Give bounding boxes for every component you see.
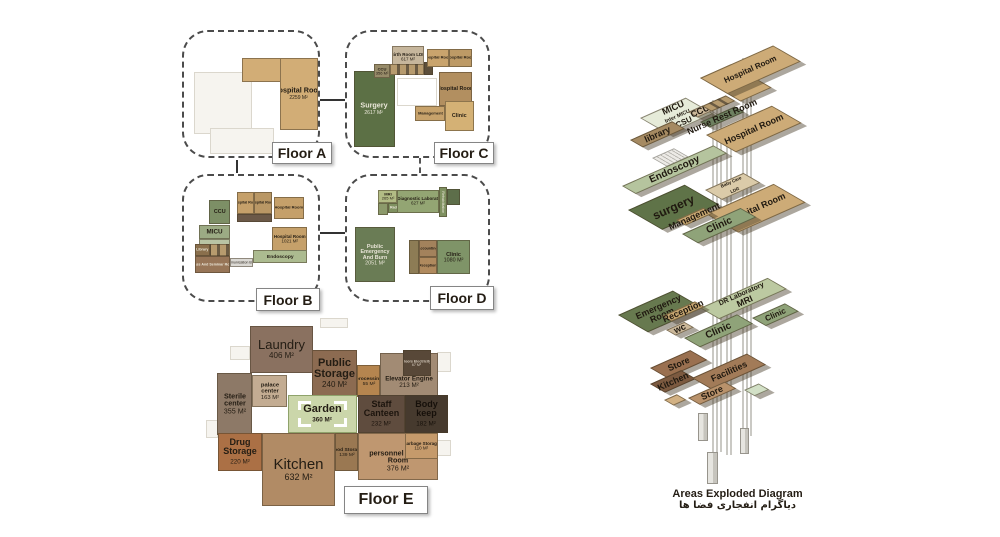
- garden-corner: [334, 401, 347, 410]
- room-label: MICU: [206, 229, 222, 236]
- room-emergency: Public Emergency And Burn 2051 M²: [355, 227, 395, 282]
- floor-a-box: Hospital Room 2259 M² Floor A: [182, 30, 320, 158]
- room-area: 617 M²: [401, 57, 415, 62]
- corridor: [237, 214, 272, 222]
- areas-diagram-canvas: Hospital Room 2259 M² Floor A Surgery 26…: [0, 0, 1000, 537]
- room-reception: Reception: [419, 257, 437, 274]
- floor-d-label-text: Floor D: [438, 290, 487, 306]
- room-label: Management: [418, 111, 443, 115]
- room-processing: processing 55 M²: [357, 365, 380, 397]
- room-area: 55 M²: [362, 381, 375, 386]
- room-label: Communication Bridge: [230, 261, 253, 265]
- room-hospital-room-2: Hospital Room: [449, 49, 472, 67]
- room-label: Library: [196, 248, 208, 252]
- floor-outline: [320, 318, 348, 328]
- plate-cell: [664, 394, 686, 405]
- room-label-group: Accounting: [419, 247, 437, 251]
- room-label-group: Clinic: [452, 113, 467, 119]
- room-label: Rehabilitation: [441, 191, 445, 213]
- room-area: 110 M²: [415, 446, 429, 451]
- room-palace-center: palace center 163 M²: [252, 375, 287, 407]
- room-drug-storage: Drug Storage 220 M²: [218, 433, 262, 471]
- room-hospital-room-2: Hospital Room: [254, 192, 272, 214]
- floor-b-label-text: Floor B: [264, 292, 313, 308]
- room-label: Hospital Room: [237, 201, 254, 205]
- connector-a-b: [236, 160, 238, 173]
- floor-e-label: Floor E: [344, 486, 428, 514]
- room-label-group: Hospital Room: [237, 201, 254, 205]
- room-label-group: Hospital Room: [449, 56, 472, 60]
- pillar: [740, 428, 749, 454]
- room-clinic: Clinic: [445, 101, 474, 131]
- room-area: 376 M²: [387, 465, 409, 473]
- room-label-group: Garbage Storage 110 M²: [405, 441, 438, 450]
- room-label: Public Storage: [313, 358, 356, 381]
- room-management: Management: [415, 106, 445, 121]
- room-surgery: Surgery 2617 M²: [354, 71, 395, 147]
- room-label: CCU: [214, 209, 226, 215]
- room-label-group: Floors Electricity 67 M²: [403, 359, 431, 367]
- service-cells: [210, 244, 230, 256]
- room-area: 67 M²: [412, 363, 421, 367]
- room-area: 355 M²: [223, 408, 245, 416]
- support-column: [746, 58, 748, 436]
- room-label-group: CCU: [214, 209, 226, 215]
- room-label: Drug Storage: [219, 438, 261, 457]
- room-label-group: Clinic 1080 M²: [444, 251, 464, 262]
- room-label-group: processing 55 M²: [357, 376, 380, 386]
- room-label-group: Reception: [419, 264, 436, 268]
- room-label: Hospital Room: [449, 56, 472, 60]
- room-label-group: Hospital Room: [427, 56, 449, 60]
- room-area: 356 M²: [376, 71, 389, 75]
- room-label-group: Library: [196, 248, 208, 252]
- room-label-group: Management: [418, 111, 443, 115]
- room-label-group: Public Emergency And Burn 2051 M²: [357, 243, 393, 266]
- room-label: Reception: [419, 264, 436, 268]
- room-area: 1021 M²: [281, 240, 298, 245]
- room-label: Surgery: [361, 101, 388, 109]
- room-rehabilitation: Rehabilitation: [439, 187, 447, 217]
- garden-corner: [334, 418, 347, 427]
- room-label-group: MICU: [206, 229, 222, 236]
- room-clinic: Clinic 1080 M²: [437, 240, 470, 274]
- room-area: 632 M²: [284, 473, 312, 482]
- room-label-group: Hospital Room: [439, 86, 472, 92]
- room-ccu: CCU 356 M²: [374, 64, 390, 78]
- room-area: 2051 M²: [365, 260, 385, 266]
- room-body-keep: Body keep 182 M²: [405, 395, 448, 433]
- room-micu: MICU: [199, 225, 230, 239]
- room-label: Hospital Room: [280, 86, 318, 94]
- room-label-group: Class And Seminar Room: [195, 263, 230, 267]
- exploded-title: Areas Exploded Diagram: [640, 488, 835, 500]
- room-accounting: Accounting: [419, 240, 437, 257]
- room-label: Public Emergency And Burn: [357, 243, 393, 260]
- support-column: [742, 58, 744, 436]
- room-label-group: Hospital Room: [254, 201, 272, 205]
- connector-c-d: [419, 158, 421, 173]
- room-label-group: MRI 265 M²: [381, 192, 394, 200]
- room-label-group: Communication Bridge: [230, 261, 253, 265]
- floor-outline: [230, 346, 250, 360]
- floor-e-label-text: Floor E: [358, 491, 413, 509]
- room-garden: Garden 360 M²: [288, 395, 357, 433]
- floor-b-label: Floor B: [256, 288, 320, 311]
- room-sterile-center: Sterile center 355 M²: [217, 373, 252, 435]
- room-floors-electricity: Floors Electricity 67 M²: [403, 350, 431, 376]
- plate-kitchen: Kitchen: [650, 370, 696, 392]
- room-garbage-storage: Garbage Storage 110 M²: [405, 433, 438, 459]
- room-hospital-room: Hospital Room 2259 M²: [280, 58, 318, 130]
- room-label-group: Food Storage 139 M²: [335, 447, 358, 457]
- room-hospital-room-4: Hospital Room 1021 M²: [272, 227, 307, 252]
- room-label-group: palace center 163 M²: [255, 382, 284, 400]
- room-laundry: Laundry 406 M²: [250, 326, 313, 373]
- room-label: Kitchen: [273, 457, 323, 473]
- room-label: palace center: [255, 382, 284, 394]
- room-area: 213 M²: [399, 382, 419, 389]
- room-endoscopy: Endoscopy: [253, 250, 307, 263]
- room-area: 220 M²: [230, 458, 250, 465]
- floor-c-label: Floor C: [434, 142, 494, 164]
- floor-outline: [210, 128, 274, 154]
- room-mri: MRI 265 M²: [378, 190, 397, 203]
- room-label-group: Elevator Engine 213 M²: [385, 375, 433, 388]
- room-area: 2617 M²: [365, 110, 383, 115]
- room-hospital-room-1: Hospital Room: [427, 49, 449, 67]
- garden-corner: [298, 401, 311, 410]
- room-food-storage: Food Storage 139 M²: [335, 433, 358, 471]
- room-communication-bridge: Communication Bridge: [230, 258, 253, 267]
- room-label: Body keep: [406, 400, 447, 419]
- connector-b-d: [320, 232, 345, 234]
- room-label-group: CCU 356 M²: [376, 67, 389, 75]
- room-label: Hospital Room: [427, 56, 449, 60]
- floor-b-box: CCU Hospital Room Hospital Room Hospital…: [182, 174, 320, 302]
- plate-label: wc: [670, 322, 689, 336]
- room-label: Laundry: [258, 338, 305, 352]
- service-cell: [378, 203, 388, 215]
- room-label: Sterile center: [221, 393, 248, 408]
- room-area: 2259 M²: [290, 95, 308, 100]
- room-area: 163 M²: [260, 394, 278, 400]
- floor-c-box: Surgery 2617 M² Birth Room LDR 617 M² CC…: [345, 30, 490, 158]
- room-label: Clinic: [452, 113, 467, 119]
- room-area: 627 M²: [411, 202, 425, 207]
- exploded-subtitle: دیاگرام انفجاری فضا ها: [640, 500, 835, 511]
- floor-outline: [437, 352, 451, 372]
- baby-care-cells: [390, 64, 424, 75]
- room-area: 406 M²: [269, 352, 294, 360]
- room-label: Hospital Room: [275, 206, 304, 210]
- connector-a-c: [320, 99, 345, 101]
- room-label-group: Sterile center 355 M²: [221, 393, 248, 416]
- entrance-cell: [409, 240, 419, 274]
- room-area: 1080 M²: [444, 257, 464, 263]
- plate-label: LDR: [729, 187, 739, 195]
- room-kitchen: Kitchen 632 M²: [262, 433, 335, 506]
- pillar: [707, 452, 718, 484]
- room-staff-canteen: Staff Canteen 232 M²: [358, 395, 405, 433]
- room-label: Hospital Room: [254, 201, 272, 205]
- exploded-caption: Areas Exploded Diagram دیاگرام انفجاری ف…: [640, 488, 835, 511]
- room-label-group: Hospital Room: [275, 206, 304, 210]
- service-room: [447, 189, 460, 205]
- room-label: Endoscopy: [267, 254, 294, 259]
- room-hospital-room-1: Hospital Room: [237, 192, 254, 214]
- room-library: Library: [195, 244, 210, 256]
- room-area: 240 M²: [322, 381, 347, 389]
- room-area: 139 M²: [339, 452, 354, 457]
- floor-a-label: Floor A: [272, 142, 332, 164]
- room-area: 232 M²: [372, 420, 392, 427]
- room-label-group: Dr Diagnostic Laboratory 627 M²: [397, 197, 439, 206]
- room-label-group: Hospital Room 1021 M²: [274, 235, 306, 244]
- room-hospital-room-3: Hospital Room: [274, 197, 304, 219]
- floor-a-label-text: Floor A: [278, 145, 326, 161]
- room-ccu: CCU: [209, 200, 230, 224]
- room-diagnostic-lab: Dr Diagnostic Laboratory 627 M²: [397, 190, 439, 213]
- room-area: 182 M²: [417, 420, 437, 427]
- floor-c-label-text: Floor C: [440, 145, 489, 161]
- room-area: 360 M²: [313, 416, 333, 423]
- plate-label: Clinic: [758, 303, 794, 327]
- room-label-group: Birth Room LDR 617 M²: [392, 52, 424, 61]
- room-label: Hospital Room: [439, 86, 472, 92]
- courtyard: [397, 78, 437, 106]
- room-label-group: Endoscopy: [267, 254, 294, 259]
- garden-corner: [298, 418, 311, 427]
- floor-d-box: MRI 265 M² Radiology Dr Diagnostic Labor…: [345, 174, 490, 302]
- room-area: 265 M²: [381, 197, 394, 201]
- room-label-group: Surgery 2617 M²: [361, 101, 388, 116]
- room-label-group: Hospital Room 2259 M²: [280, 86, 318, 101]
- room-label: Accounting: [419, 247, 437, 251]
- room-public-storage: Public Storage 240 M²: [312, 350, 357, 397]
- floor-outline: [437, 440, 451, 456]
- plate-clinic-2: Clinic: [752, 303, 799, 326]
- room-label: Class And Seminar Room: [195, 263, 230, 267]
- room-class-seminar: Class And Seminar Room: [195, 256, 230, 273]
- room-label: Staff Canteen: [359, 400, 404, 419]
- plate-wc: wc: [666, 322, 694, 336]
- pillar: [698, 413, 708, 441]
- floor-d-label: Floor D: [430, 286, 494, 310]
- room-label-group: Rehabilitation: [441, 191, 445, 213]
